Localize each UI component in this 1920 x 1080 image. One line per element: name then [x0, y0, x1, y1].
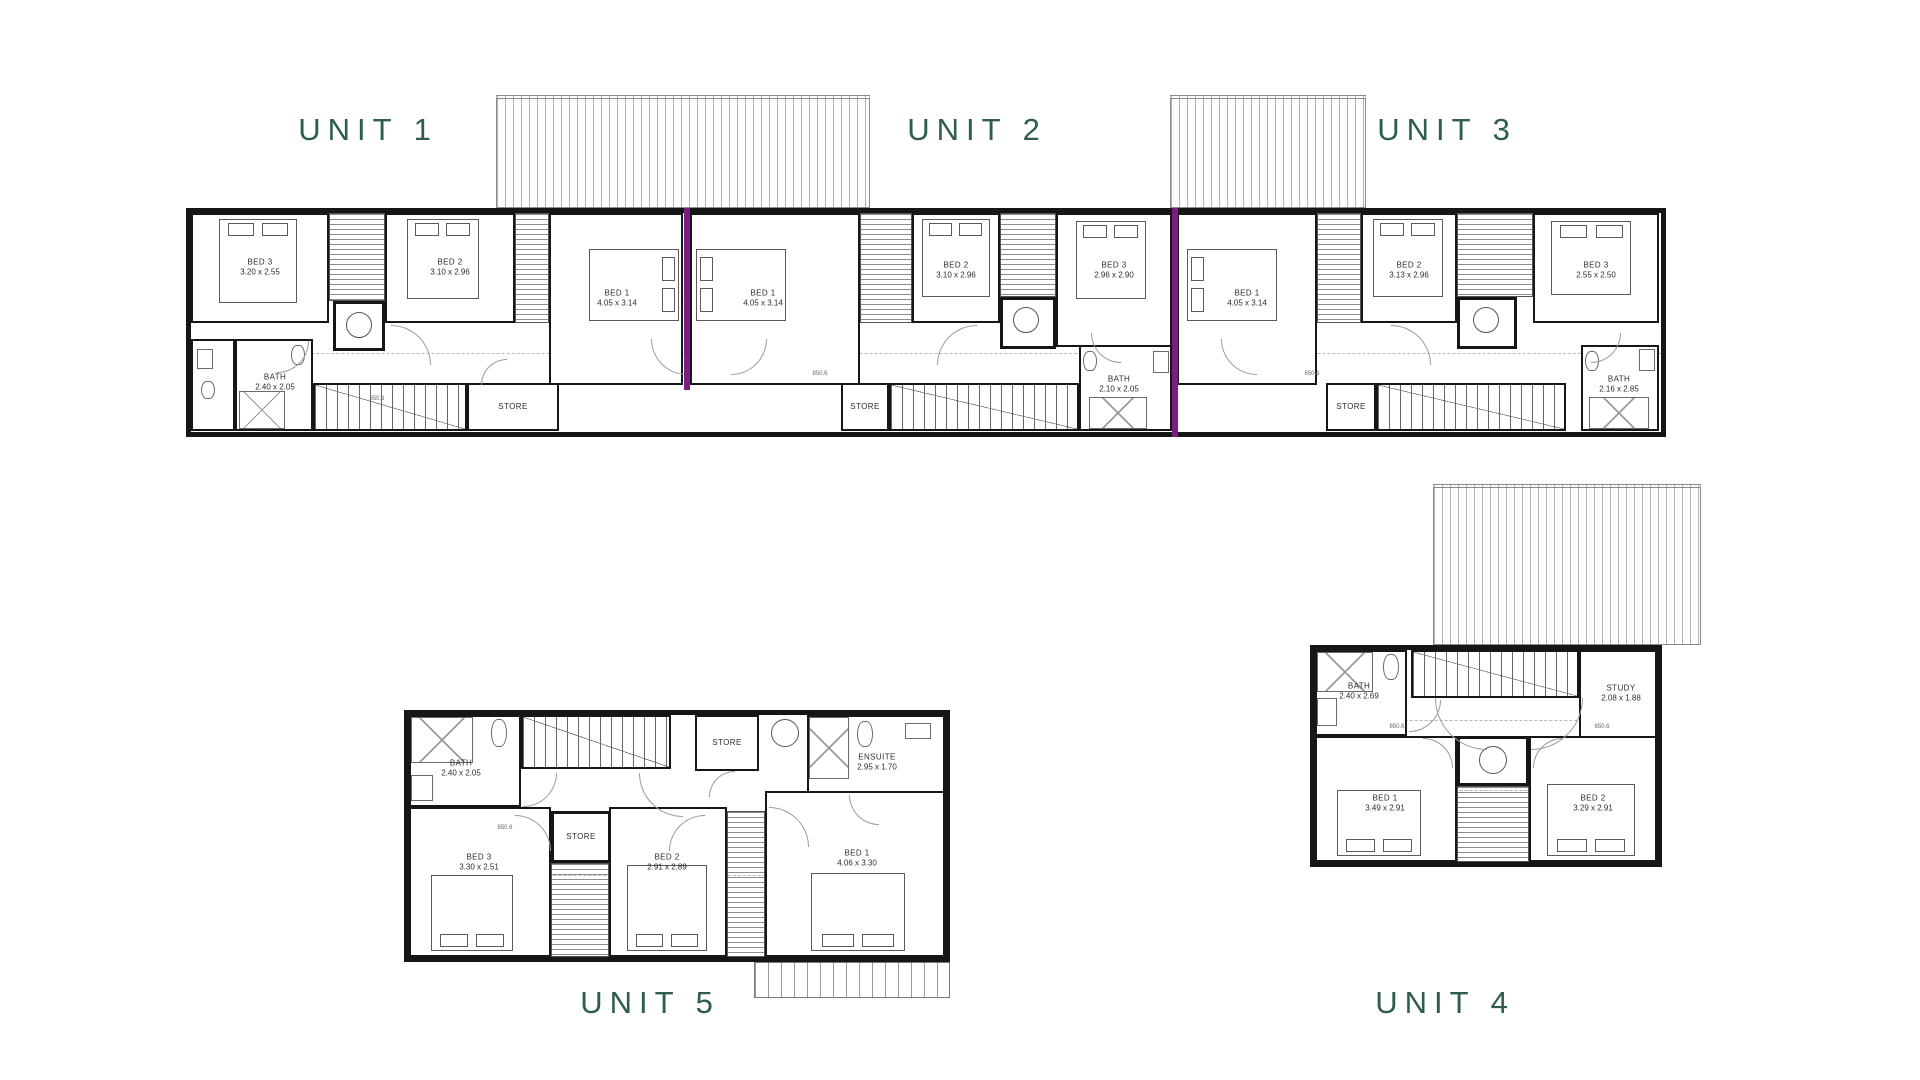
- door-dim-label: 850.6: [812, 371, 827, 377]
- unit2-hwc-circle: [1013, 307, 1039, 333]
- room-name: BED 2: [647, 853, 687, 863]
- unit1-bed1-label: BED 1 4.05 x 3.14: [597, 289, 637, 310]
- unit3-store-label: STORE: [1336, 402, 1365, 412]
- room-name: BED 1: [837, 849, 877, 859]
- room-name: BED 1: [743, 289, 783, 299]
- building-unit5: BATH 2.40 x 2.05 STORE ENSUITE 2.95 x 1.…: [404, 710, 950, 962]
- unit2-bed3-label: BED 3 2.96 x 2.90: [1094, 261, 1134, 282]
- unit4-study-label: STUDY 2.08 x 1.88: [1601, 684, 1641, 705]
- room-name: BATH: [1099, 375, 1139, 385]
- door-arc: [1391, 325, 1431, 365]
- room-name: BED 2: [936, 261, 976, 271]
- room-name: BED 1: [597, 289, 637, 299]
- pillow: [1557, 839, 1587, 852]
- room-dim: 2.91 x 2.89: [647, 863, 687, 873]
- room-dim: 4.05 x 3.14: [597, 299, 637, 309]
- pillow: [1595, 839, 1625, 852]
- room-dim: 2.40 x 2.05: [441, 769, 481, 779]
- room-name: BED 3: [459, 853, 499, 863]
- unit2-stairs: [889, 383, 1079, 431]
- pillow: [636, 934, 663, 947]
- party-wall-unit1-unit2: [684, 208, 690, 390]
- unit5-wardrobe-hatch: [727, 811, 765, 957]
- unit2-wardrobe-hatch: [1000, 213, 1056, 297]
- door-arc: [523, 773, 557, 807]
- pillow: [1191, 288, 1204, 312]
- room-dim: 3.10 x 2.96: [936, 271, 976, 281]
- room-dim: 2.40 x 2.05: [255, 383, 295, 393]
- unit5-bed2-label: BED 2 2.91 x 2.89: [647, 853, 687, 874]
- unit4-hwc-circle: [1479, 746, 1507, 774]
- door-arc: [391, 325, 431, 365]
- building-units-1-2-3: BED 3 3.20 x 2.55 BED 2 3.10 x 2.96 BED …: [186, 208, 1666, 437]
- pillow: [662, 257, 675, 281]
- room-name: STORE: [498, 402, 527, 412]
- pillow: [1596, 225, 1623, 238]
- unit5-vanity: [411, 775, 433, 801]
- unit1-bed1-bed: [589, 249, 679, 321]
- roof-hatch-units2-3: [1170, 95, 1366, 208]
- pillow: [1411, 223, 1435, 236]
- unit5-bed1-bed: [811, 873, 905, 951]
- pillow: [262, 223, 288, 236]
- unit1-wardrobe-hatch: [515, 213, 549, 323]
- pillow: [446, 223, 470, 236]
- room-dim: 3.30 x 2.51: [459, 863, 499, 873]
- unit1-title: UNIT 1: [298, 112, 438, 148]
- floor-plan-sheet: UNIT 1 UNIT 2 UNIT 3 UNIT 5 UNIT 4: [0, 0, 1920, 1080]
- unit3-wardrobe-hatch: [1317, 213, 1361, 323]
- room-dim: 3.29 x 2.91: [1573, 804, 1613, 814]
- pillow: [228, 223, 254, 236]
- door-dim-label: 850.6: [497, 825, 512, 831]
- unit1-bed3-label: BED 3 3.20 x 2.55: [240, 258, 280, 279]
- unit5-bath-label: BATH 2.40 x 2.05: [441, 759, 481, 780]
- room-name: BATH: [441, 759, 481, 769]
- unit5-stairs: [521, 715, 671, 769]
- unit3-wardrobe-hatch: [1457, 213, 1533, 297]
- room-name: STORE: [850, 402, 879, 412]
- unit1-bath-label: BATH 2.40 x 2.05: [255, 373, 295, 394]
- room-name: BED 2: [1573, 794, 1613, 804]
- unit2-shower: [1089, 397, 1147, 429]
- unit5-ensuite-label: ENSUITE 2.95 x 1.70: [857, 753, 897, 774]
- unit4-bath-label: BATH 2.40 x 2.69: [1339, 682, 1379, 703]
- pillow: [662, 288, 675, 312]
- pillow: [476, 934, 504, 947]
- room-dim: 2.16 x 2.85: [1599, 385, 1639, 395]
- room-name: BED 2: [430, 258, 470, 268]
- door-arc: [481, 359, 507, 385]
- unit5-bed3-bed: [431, 875, 513, 951]
- unit5-shower: [411, 717, 473, 763]
- pillow: [1114, 225, 1138, 238]
- door-arc: [937, 325, 977, 365]
- room-dim: 2.10 x 2.05: [1099, 385, 1139, 395]
- unit1-shower: [239, 391, 285, 429]
- pillow: [959, 223, 982, 236]
- unit5-store-mid-label: STORE: [566, 832, 595, 842]
- unit1-stairs: [313, 383, 467, 431]
- room-dim: 2.95 x 1.70: [857, 763, 897, 773]
- unit5-bed1-label: BED 1 4.06 x 3.30: [837, 849, 877, 870]
- unit4-title: UNIT 4: [1375, 985, 1515, 1021]
- pillow: [671, 934, 698, 947]
- pillow: [929, 223, 952, 236]
- unit1-toilet: [201, 381, 215, 399]
- unit1-wardrobe-hatch: [329, 213, 385, 301]
- unit1-hwc-circle: [346, 312, 372, 338]
- roof-hatch-units1-2: [496, 95, 870, 208]
- unit3-bed1-label: BED 1 4.05 x 3.14: [1227, 289, 1267, 310]
- unit5-deck-hatch: [754, 962, 950, 998]
- unit4-stairs: [1411, 650, 1579, 698]
- unit3-shower: [1589, 397, 1649, 429]
- room-dim: 2.40 x 2.69: [1339, 692, 1379, 702]
- unit5-wardrobe-hatch: [551, 863, 609, 957]
- unit3-bed3-label: BED 3 2.55 x 2.50: [1576, 261, 1616, 282]
- unit2-vanity: [1153, 351, 1169, 373]
- unit5-toilet: [491, 719, 507, 747]
- room-dim: 2.08 x 1.88: [1601, 694, 1641, 704]
- unit2-store-label: STORE: [850, 402, 879, 412]
- pillow: [700, 288, 713, 312]
- room-name: BED 3: [1094, 261, 1134, 271]
- unit5-hwc-circle: [771, 719, 799, 747]
- unit3-bath-label: BATH 2.16 x 2.85: [1599, 375, 1639, 396]
- room-dim: 3.10 x 2.96: [430, 268, 470, 278]
- unit3-bed3-bed: [1551, 221, 1631, 295]
- door-arc: [709, 771, 735, 797]
- room-name: BED 3: [240, 258, 280, 268]
- unit1-vanity: [197, 349, 213, 369]
- unit5-bed3-label: BED 3 3.30 x 2.51: [459, 853, 499, 874]
- unit2-bath-label: BATH 2.10 x 2.05: [1099, 375, 1139, 396]
- unit2-title: UNIT 2: [907, 112, 1047, 148]
- pillow: [1380, 223, 1404, 236]
- unit5-store-top-label: STORE: [712, 738, 741, 748]
- room-dim: 2.96 x 2.90: [1094, 271, 1134, 281]
- building-unit4: BATH 2.40 x 2.69 STUDY 2.08 x 1.88 BED 1…: [1310, 645, 1662, 867]
- unit2-bed2-label: BED 2 3.10 x 2.96: [936, 261, 976, 282]
- unit3-vanity: [1639, 349, 1655, 371]
- unit3-title: UNIT 3: [1377, 112, 1517, 148]
- pillow: [862, 934, 894, 947]
- roof-hatch-unit4: [1433, 484, 1701, 645]
- unit5-ensuite-shower: [809, 717, 849, 779]
- room-name: STORE: [566, 832, 595, 842]
- unit4-bed1-label: BED 1 3.49 x 2.91: [1365, 794, 1405, 815]
- room-name: STUDY: [1601, 684, 1641, 694]
- pillow: [1191, 257, 1204, 281]
- door-dim-label: 850.6: [369, 396, 384, 402]
- room-name: STORE: [712, 738, 741, 748]
- room-dim: 4.06 x 3.30: [837, 859, 877, 869]
- pillow: [1560, 225, 1587, 238]
- door-dim-label: 850.6: [1594, 724, 1609, 730]
- room-dim: 3.20 x 2.55: [240, 268, 280, 278]
- unit2-bed1-label: BED 1 4.05 x 3.14: [743, 289, 783, 310]
- room-dim: 3.13 x 2.96: [1389, 271, 1429, 281]
- unit1-bed2-label: BED 2 3.10 x 2.96: [430, 258, 470, 279]
- room-name: BED 2: [1389, 261, 1429, 271]
- unit1-store-label: STORE: [498, 402, 527, 412]
- pillow: [1383, 839, 1412, 852]
- pillow: [440, 934, 468, 947]
- unit4-toilet: [1383, 654, 1399, 680]
- room-dim: 2.55 x 2.50: [1576, 271, 1616, 281]
- room-dim: 3.49 x 2.91: [1365, 804, 1405, 814]
- unit3-bed1-bed: [1187, 249, 1277, 321]
- room-name: BED 1: [1365, 794, 1405, 804]
- room-name: ENSUITE: [857, 753, 897, 763]
- unit4-vanity: [1317, 698, 1337, 726]
- door-dim-label: 850.6: [1304, 371, 1319, 377]
- room-name: BATH: [1339, 682, 1379, 692]
- unit2-wardrobe-hatch: [860, 213, 912, 323]
- pillow: [1083, 225, 1107, 238]
- unit2-bath-toilet: [1083, 351, 1097, 371]
- unit5-ensuite-vanity: [905, 723, 931, 739]
- pillow: [700, 257, 713, 281]
- unit3-bed2-label: BED 2 3.13 x 2.96: [1389, 261, 1429, 282]
- room-name: BATH: [255, 373, 295, 383]
- room-name: STORE: [1336, 402, 1365, 412]
- pillow: [822, 934, 854, 947]
- room-dim: 4.05 x 3.14: [1227, 299, 1267, 309]
- unit2-bed2-bed: [922, 219, 990, 297]
- unit3-hwc-circle: [1473, 307, 1499, 333]
- unit3-bed2-bed: [1373, 219, 1443, 297]
- unit3-stairs: [1376, 383, 1566, 431]
- pillow: [415, 223, 439, 236]
- door-dim-label: 850.6: [1389, 724, 1404, 730]
- room-name: BATH: [1599, 375, 1639, 385]
- unit5-ensuite-toilet: [857, 721, 873, 747]
- unit4-wardrobe-hatch: [1457, 786, 1529, 862]
- unit2-bed1-bed: [696, 249, 786, 321]
- room-dim: 4.05 x 3.14: [743, 299, 783, 309]
- party-wall-unit2-unit3: [1172, 208, 1178, 437]
- room-name: BED 1: [1227, 289, 1267, 299]
- unit5-title: UNIT 5: [580, 985, 720, 1021]
- pillow: [1346, 839, 1375, 852]
- room-name: BED 3: [1576, 261, 1616, 271]
- unit4-bed2-label: BED 2 3.29 x 2.91: [1573, 794, 1613, 815]
- unit5-bed2-bed: [627, 865, 707, 951]
